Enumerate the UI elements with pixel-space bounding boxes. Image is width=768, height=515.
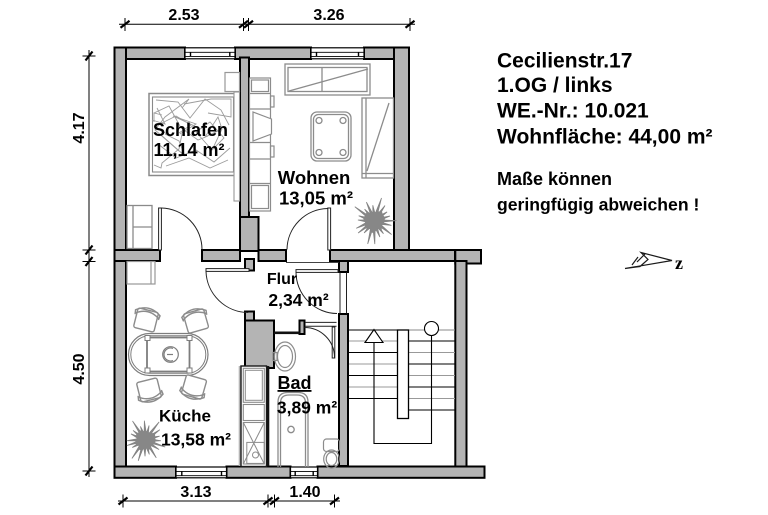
svg-text:2.53: 2.53: [168, 7, 199, 24]
svg-text:4.50: 4.50: [71, 353, 88, 384]
svg-text:3.13: 3.13: [180, 484, 211, 501]
svg-text:3,89 m²: 3,89 m²: [277, 398, 337, 418]
svg-text:2,34 m²: 2,34 m²: [268, 290, 328, 310]
svg-text:4.17: 4.17: [71, 112, 88, 143]
svg-text:13,58 m²: 13,58 m²: [161, 430, 231, 450]
svg-text:1.OG / links: 1.OG / links: [497, 74, 613, 97]
svg-text:Bad: Bad: [277, 373, 311, 393]
svg-text:Maße können: Maße können: [497, 169, 612, 189]
svg-text:13,05 m²: 13,05 m²: [279, 188, 353, 209]
svg-text:Wohnen: Wohnen: [278, 167, 351, 188]
svg-text:11,14 m²: 11,14 m²: [153, 140, 224, 160]
svg-text:Wohnfläche: 44,00 m²: Wohnfläche: 44,00 m²: [497, 126, 713, 149]
svg-text:geringfügig abweichen !: geringfügig abweichen !: [497, 195, 699, 215]
svg-text:Küche: Küche: [159, 407, 211, 426]
svg-text:Flur: Flur: [267, 271, 297, 288]
svg-text:WE.-Nr.: 10.021: WE.-Nr.: 10.021: [497, 100, 649, 123]
svg-text:1.40: 1.40: [289, 484, 320, 501]
svg-text:3.26: 3.26: [313, 7, 344, 24]
svg-text:Schlafen: Schlafen: [153, 120, 228, 140]
svg-text:Cecilienstr.17: Cecilienstr.17: [497, 50, 632, 73]
svg-text:z: z: [675, 253, 683, 273]
